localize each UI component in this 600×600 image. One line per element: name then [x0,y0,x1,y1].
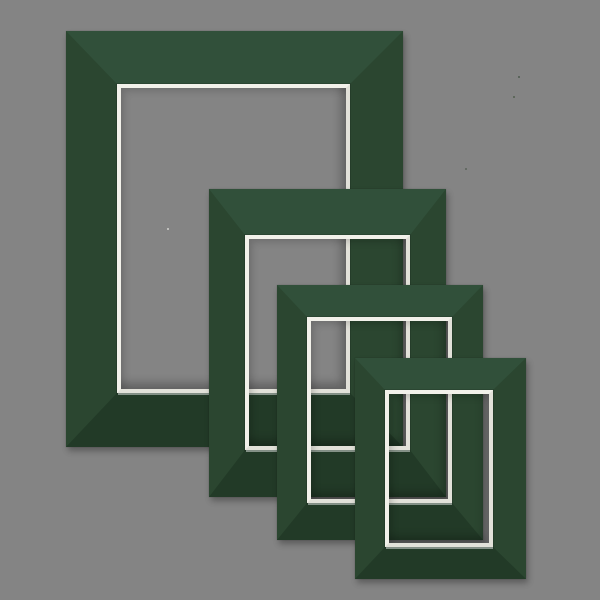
dust-speck-2 [513,96,515,98]
dust-speck-4 [167,228,169,230]
product-photo-canvas [0,0,600,600]
mat-board-stack [0,0,600,600]
mat-board-4-smallest [355,358,526,579]
mat-board-4-smallest-bevel-opening [385,390,493,547]
dust-speck-3 [465,168,467,170]
mat-board-4-smallest-bottom-edge-highlight [386,547,493,549]
dust-speck-1 [518,76,520,78]
